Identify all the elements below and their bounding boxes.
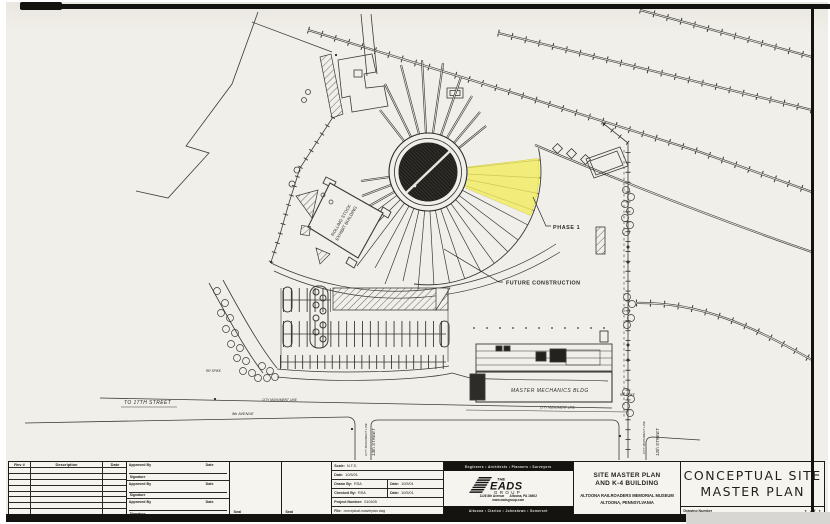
rr-spike-label-east: RR SPIKE xyxy=(620,393,636,397)
approval-date-label: Date xyxy=(206,482,214,486)
future-construction-label: FUTURE CONSTRUCTION xyxy=(506,281,580,287)
master-mechanics-building: MASTER MECHANICS BLDG xyxy=(466,327,628,412)
phase1-wedge xyxy=(464,159,539,216)
project-client-line1: ALTOONA RAILROADERS MEMORIAL MUSEUM xyxy=(580,493,674,498)
drawing-info-fields: Scale: N.T.S. Date: 10/5/01 Drawn By:RSA… xyxy=(332,462,444,515)
seal-box: Seal xyxy=(230,462,282,515)
project-number-field: Project Number: 010405 xyxy=(332,498,443,507)
approved-by-label: Approved By xyxy=(129,463,151,467)
date-label: Date: xyxy=(334,473,343,477)
file-value: conceptual-masterplan.dwg xyxy=(344,509,385,513)
scan-edge-bottom-gray xyxy=(686,512,830,524)
checked-date-label: Date: xyxy=(390,491,399,495)
date-value: 10/5/01 xyxy=(345,473,358,477)
eads-group-logo: THE EADS GROUP xyxy=(463,475,553,495)
firm-website: www.eadsgroup.com xyxy=(492,499,524,503)
approval-section: Approved ByDate Signature xyxy=(127,481,230,500)
firm-services-band: Engineers • Architects • Planners • Surv… xyxy=(444,462,573,471)
to-17th-street-label: TO 17TH STREET xyxy=(124,400,172,406)
city-monument-line-label-west: CITY MONUMENT LINE xyxy=(262,398,298,402)
scale-label: Scale: xyxy=(334,464,345,468)
drawn-date-label: Date: xyxy=(390,482,399,486)
northeast-structures xyxy=(553,144,628,254)
project-identification: SITE MASTER PLAN AND K-4 BUILDING ALTOON… xyxy=(574,462,682,515)
checked-by-label: Checked By: xyxy=(334,491,356,495)
signature-label: Signature xyxy=(129,492,228,499)
approval-section: Approved ByDate Signature xyxy=(127,499,230,515)
drawing-title-block: CONCEPTUAL SITE MASTER PLAN Drawing Numb… xyxy=(681,462,824,515)
scan-edge-right xyxy=(811,8,814,516)
13th-street-label: 13th STREET xyxy=(371,427,376,456)
12th-street-label: 12th STREET xyxy=(655,427,660,456)
revision-table: Rev # Description Date xyxy=(9,462,127,515)
project-title-line2: AND K-4 BUILDING xyxy=(595,480,658,488)
site-plan-drawing: ROLLING STOCK EXHIBIT BUILDING xyxy=(0,0,830,462)
city-monument-line-label-12th: CITY MONUMENT LINE xyxy=(642,420,646,454)
phase1-label: PHASE 1 xyxy=(553,225,580,231)
city-monument-line-label-south: CITY MONUMENT LINE xyxy=(540,406,576,410)
plan-labels: PHASE 1 FUTURE CONSTRUCTION TO 17TH STRE… xyxy=(124,225,660,456)
drawn-by-field: Drawn By:RSA Date:10/5/01 xyxy=(332,480,443,489)
master-mechanics-label: MASTER MECHANICS BLDG xyxy=(511,388,589,394)
checked-by-field: Checked By:RSA Date:10/5/01 xyxy=(332,489,443,498)
approval-date-label: Date xyxy=(206,500,214,504)
scan-edge-top xyxy=(20,4,830,9)
city-monument-line-label-13th: CITY MONUMENT LINE xyxy=(364,422,368,456)
drawn-date-value: 10/5/01 xyxy=(401,482,414,486)
rr-spike-label-west: RR SPIKE xyxy=(206,369,222,373)
parking-lot xyxy=(277,286,608,381)
checked-date-value: 10/5/01 xyxy=(401,491,414,495)
approved-by-label: Approved By xyxy=(129,500,151,504)
roundhouse-complex xyxy=(346,60,541,289)
project-number-value: 010405 xyxy=(364,500,377,504)
scale-field: Scale: N.T.S. xyxy=(332,462,443,471)
firm-block: Engineers • Architects • Planners • Surv… xyxy=(444,462,574,515)
approval-date-label: Date xyxy=(206,463,214,467)
zigzag-property-line xyxy=(136,12,258,198)
approval-section: Approved ByDate Signature xyxy=(127,462,230,481)
scan-edge-bottom xyxy=(6,514,686,522)
leader-lines xyxy=(444,197,551,282)
9th-avenue-label: 9th AVENUE xyxy=(232,412,254,416)
approved-by-label: Approved By xyxy=(129,482,151,486)
approvals-block: Approved ByDate Signature Approved ByDat… xyxy=(127,462,231,515)
signature-label: Signature xyxy=(129,473,228,480)
drawing-title-line2: MASTER PLAN xyxy=(700,484,805,500)
drawn-by-value: RSA xyxy=(354,482,362,486)
project-number-label: Project Number: xyxy=(334,500,362,504)
scan-edge-top-blob xyxy=(20,2,62,10)
date-field: Date: 10/5/01 xyxy=(332,471,443,480)
drawing-title-line1: CONCEPTUAL SITE xyxy=(684,468,822,484)
file-label: File: xyxy=(334,509,341,513)
parking-tree-island xyxy=(310,286,328,348)
drawing-sheet: ROLLING STOCK EXHIBIT BUILDING xyxy=(0,0,830,524)
title-block: Rev # Description Date Approved ByDate S… xyxy=(8,461,825,516)
seal-box: Seal xyxy=(282,462,332,515)
scale-value: N.T.S. xyxy=(347,464,357,468)
drawing-title: CONCEPTUAL SITE MASTER PLAN xyxy=(681,462,824,506)
firm-logo-area: THE EADS GROUP 1126 8th Avenue Altoona, … xyxy=(444,471,573,506)
drawn-by-label: Drawn By: xyxy=(334,482,352,486)
turntable xyxy=(389,133,467,211)
checked-by-value: RSA xyxy=(358,491,366,495)
project-client-line2: ALTOONA, PENNSYLVANIA xyxy=(600,500,654,505)
entry-drive-trees xyxy=(209,280,279,382)
right-boundary-trees xyxy=(622,187,636,417)
project-title-line1: SITE MASTER PLAN xyxy=(594,472,661,480)
